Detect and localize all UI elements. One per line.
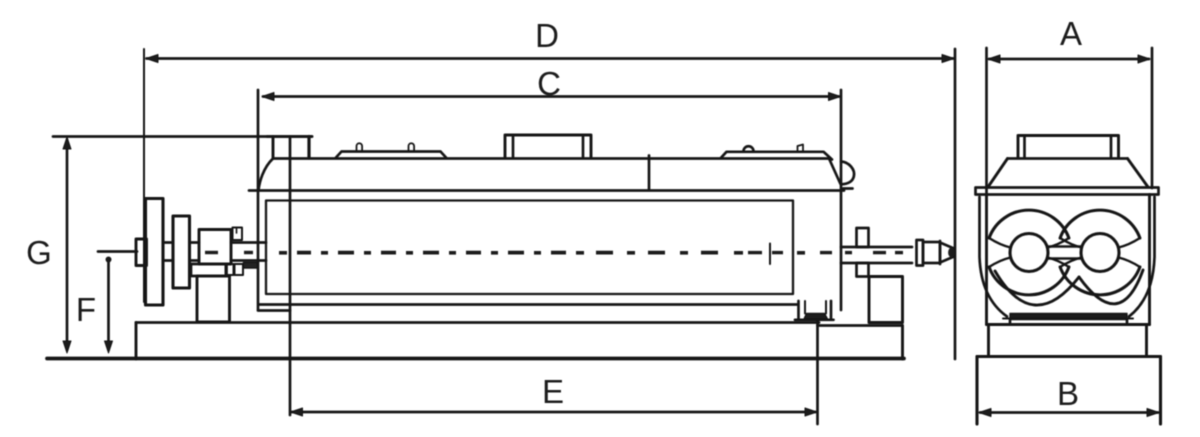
svg-text:G: G: [26, 234, 52, 271]
svg-text:E: E: [542, 373, 564, 410]
svg-text:D: D: [535, 17, 559, 54]
svg-text:F: F: [76, 291, 96, 328]
svg-text:B: B: [1057, 375, 1079, 412]
svg-text:A: A: [1060, 15, 1082, 52]
